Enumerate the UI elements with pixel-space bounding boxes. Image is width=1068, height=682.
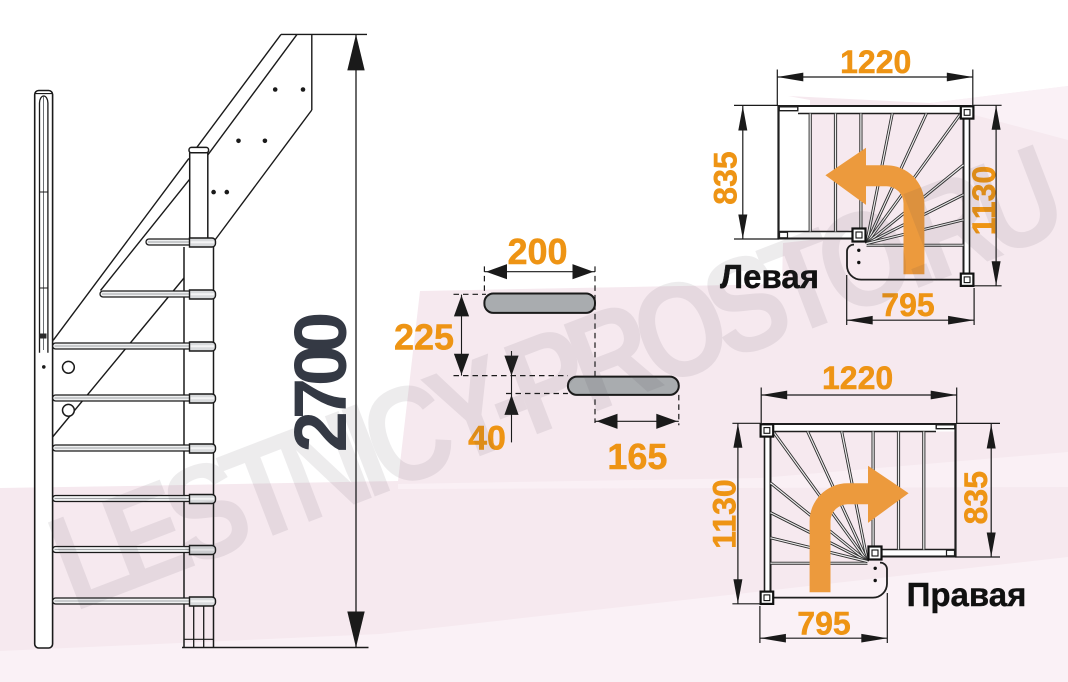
- svg-text:835: 835: [708, 151, 744, 204]
- svg-text:1130: 1130: [707, 479, 743, 548]
- svg-text:Правая: Правая: [907, 576, 1027, 613]
- svg-text:1220: 1220: [822, 360, 893, 396]
- svg-text:200: 200: [507, 231, 567, 272]
- svg-text:795: 795: [797, 606, 850, 642]
- svg-text:835: 835: [958, 471, 994, 524]
- svg-text:1220: 1220: [840, 44, 911, 80]
- svg-text:165: 165: [607, 436, 667, 477]
